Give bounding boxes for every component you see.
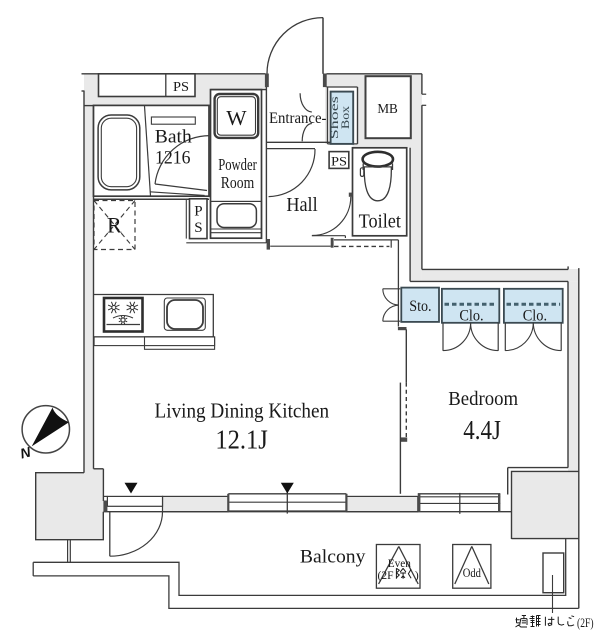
svg-text:P: P (194, 204, 202, 220)
svg-text:PS: PS (173, 79, 189, 94)
svg-text:Room: Room (221, 173, 254, 192)
svg-text:Hall: Hall (286, 194, 318, 216)
svg-text:): ) (415, 570, 419, 582)
svg-text:Living Dining Kitchen: Living Dining Kitchen (155, 399, 330, 423)
svg-text:Clo.: Clo. (523, 308, 547, 325)
svg-text:MB: MB (377, 101, 398, 116)
svg-text:(2F): (2F) (577, 615, 594, 630)
svg-text:(2F: (2F (378, 570, 394, 582)
svg-text:Balcony: Balcony (300, 546, 366, 567)
svg-text:PS: PS (331, 153, 347, 168)
svg-text:Sto.: Sto. (409, 298, 431, 315)
svg-text:Odd: Odd (463, 565, 482, 580)
svg-text:4.4J: 4.4J (463, 415, 501, 445)
svg-text:Bath: Bath (155, 126, 193, 147)
svg-text:Toilet: Toilet (359, 210, 402, 232)
svg-text:1216: 1216 (155, 147, 191, 168)
svg-text:12.1J: 12.1J (215, 423, 268, 454)
svg-text:Clo.: Clo. (459, 308, 483, 325)
svg-text:S: S (194, 220, 202, 236)
svg-text:Entrance-: Entrance- (269, 110, 327, 127)
svg-text:W: W (226, 106, 247, 130)
svg-text:Box: Box (338, 106, 352, 129)
svg-text:Even: Even (388, 558, 411, 570)
svg-text:Powder: Powder (218, 155, 257, 174)
svg-text:Bedroom: Bedroom (448, 388, 518, 410)
svg-text:R: R (107, 213, 122, 238)
